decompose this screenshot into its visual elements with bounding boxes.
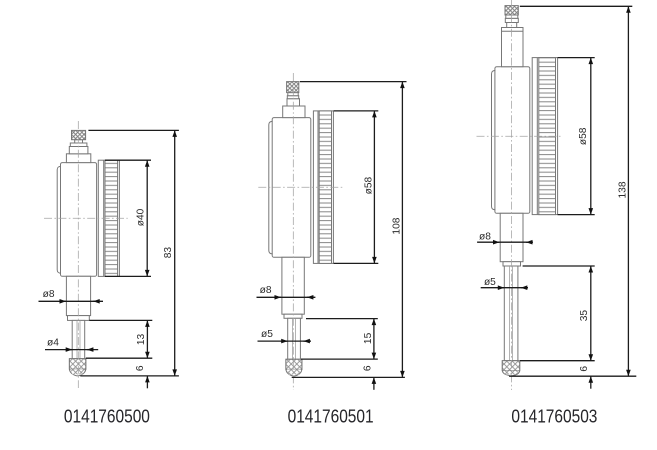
- svg-text:138: 138: [618, 181, 629, 198]
- svg-text:0141760501: 0141760501: [288, 406, 374, 427]
- svg-text:ø40: ø40: [136, 208, 147, 226]
- svg-text:ø8: ø8: [479, 232, 491, 243]
- svg-text:ø8: ø8: [260, 285, 272, 296]
- svg-text:ø58: ø58: [578, 127, 589, 145]
- svg-text:ø8: ø8: [43, 289, 55, 300]
- svg-text:83: 83: [163, 247, 174, 259]
- svg-text:108: 108: [391, 217, 402, 234]
- svg-text:15: 15: [363, 332, 374, 344]
- svg-text:13: 13: [136, 334, 147, 346]
- svg-text:6: 6: [135, 365, 146, 371]
- svg-text:6: 6: [363, 365, 374, 371]
- svg-text:6: 6: [579, 366, 590, 372]
- svg-text:0141760500: 0141760500: [64, 406, 150, 427]
- svg-text:ø58: ø58: [364, 176, 375, 194]
- svg-text:ø5: ø5: [484, 277, 496, 288]
- svg-text:ø4: ø4: [47, 338, 59, 349]
- svg-text:ø5: ø5: [261, 329, 273, 340]
- svg-text:35: 35: [579, 310, 590, 322]
- svg-text:0141760503: 0141760503: [511, 406, 597, 427]
